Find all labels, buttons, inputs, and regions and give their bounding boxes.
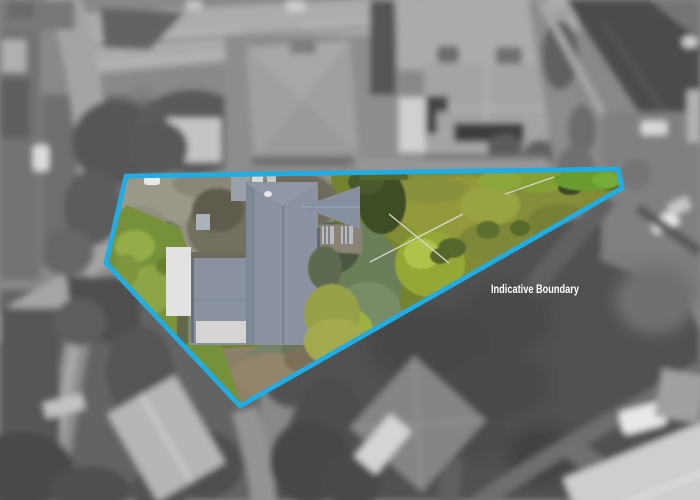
svg-text:Indicative Boundary: Indicative Boundary (491, 282, 579, 296)
